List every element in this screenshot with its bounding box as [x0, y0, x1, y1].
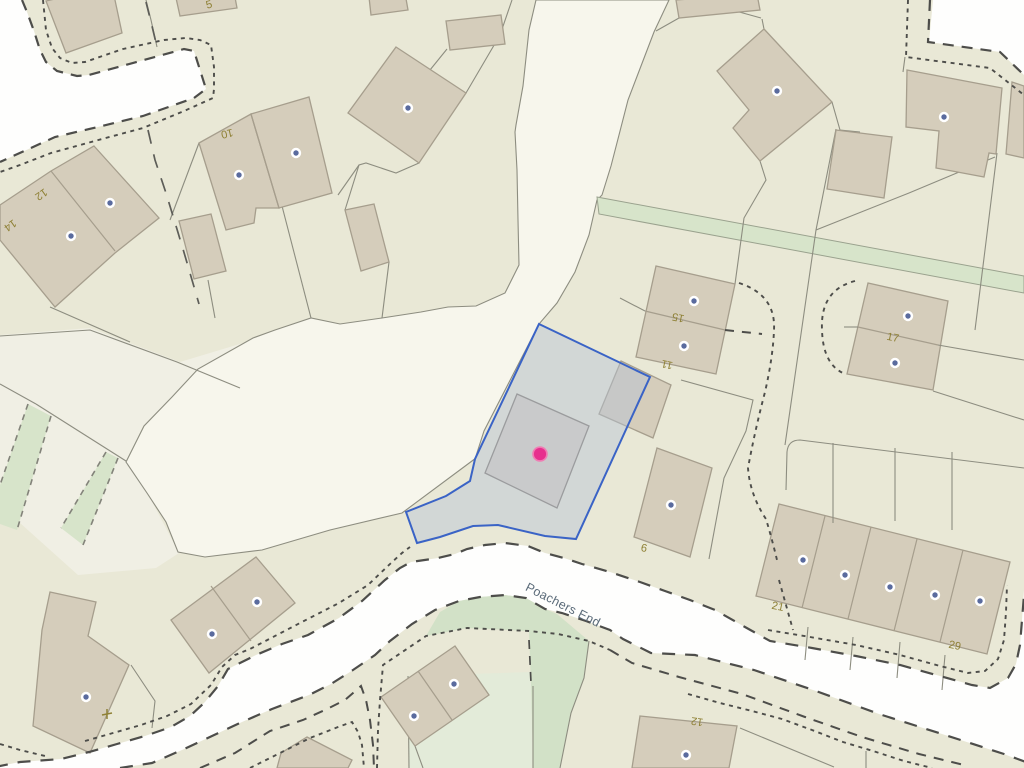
svg-text:29: 29 — [948, 639, 962, 653]
svg-text:12: 12 — [690, 714, 704, 728]
svg-text:11: 11 — [660, 357, 674, 371]
svg-text:21: 21 — [771, 600, 785, 614]
svg-text:15: 15 — [671, 310, 685, 324]
svg-text:17: 17 — [886, 331, 900, 345]
